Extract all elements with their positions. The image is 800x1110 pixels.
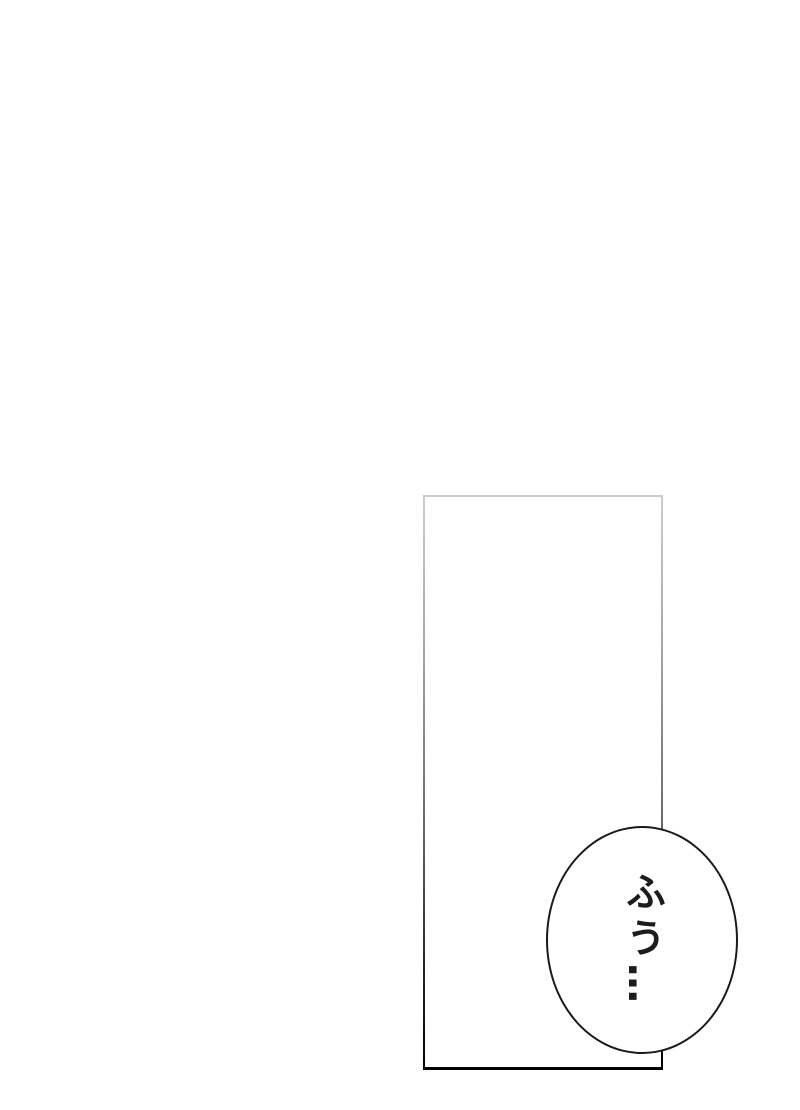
speech-bubble-text: ふう… — [622, 871, 662, 1009]
manga-page: ふう… — [0, 0, 800, 1110]
speech-bubble: ふう… — [546, 826, 738, 1054]
